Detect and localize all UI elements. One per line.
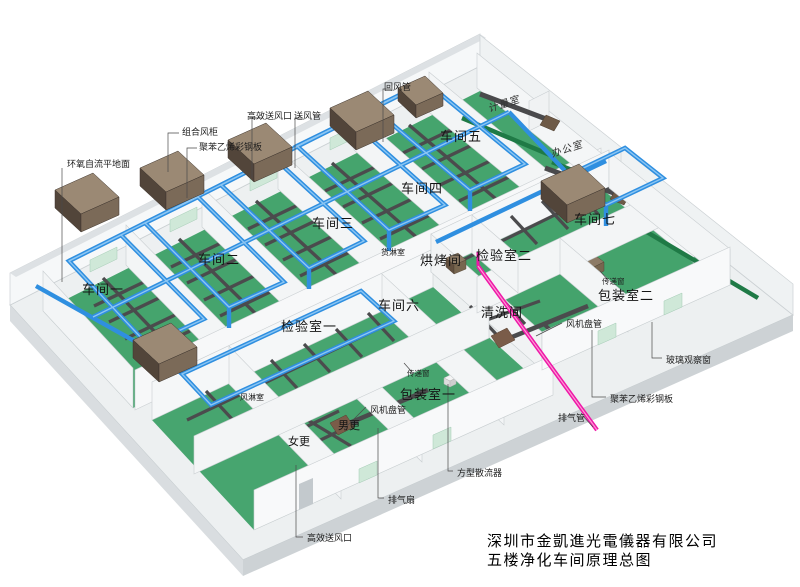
callout-hepa-supply-outlet-bottom: 高效送风口 <box>307 531 352 544</box>
callout-pass-window-right: 传递窗 <box>602 276 625 287</box>
drawing-title: 五楼净化车间原理总图 <box>487 552 718 571</box>
label-workshop-7: 车间七 <box>574 209 616 228</box>
label-packing-room-1: 包装室一 <box>400 384 456 403</box>
callout-fan-coil-right: 风机盘管 <box>566 317 602 330</box>
callout-square-diffuser: 方型散流器 <box>457 466 502 479</box>
title-block: 深圳市金凱進光電儀器有限公司 五楼净化车间原理总图 <box>487 533 718 571</box>
label-baking-room: 烘烤间 <box>420 250 462 269</box>
callout-pass-window-center: 传递窗 <box>407 368 430 379</box>
label-cargo-shower-room: 货淋室 <box>381 247 405 258</box>
label-women-changing: 女更 <box>288 433 310 449</box>
callout-exhaust-pipe: 排气管 <box>558 411 585 424</box>
callout-exhaust-fan: 排气扇 <box>388 493 415 506</box>
label-workshop-6: 车间六 <box>378 295 420 314</box>
label-workshop-4: 车间四 <box>401 178 443 197</box>
label-workshop-2: 车间二 <box>198 249 240 268</box>
diagram-stage: 车间一 车间二 车间三 车间四 车间五 车间六 车间七 检验室一 检验室二 烘烤… <box>0 0 800 587</box>
callout-polystyrene-panel-left: 聚苯乙烯彩钢板 <box>199 140 262 153</box>
label-inspection-room-2: 检验室二 <box>476 245 532 264</box>
label-workshop-5: 车间五 <box>440 126 482 145</box>
label-packing-room-2: 包装室二 <box>598 285 654 304</box>
label-workshop-1: 车间一 <box>82 279 124 298</box>
callout-combined-ahu: 组合风柜 <box>182 125 218 138</box>
callout-glass-observation-window: 玻璃观察窗 <box>666 353 711 366</box>
label-workshop-3: 车间三 <box>312 213 354 232</box>
label-men-changing: 男更 <box>338 417 360 433</box>
callout-return-duct: 回风管 <box>384 80 411 93</box>
callout-hepa-supply-outlet-top: 高效送风口 <box>247 109 292 122</box>
callout-polystyrene-panel-right: 聚苯乙烯彩钢板 <box>610 392 673 405</box>
label-inspection-room-1: 检验室一 <box>281 316 337 335</box>
company-name: 深圳市金凱進光電儀器有限公司 <box>487 533 718 552</box>
label-air-shower-room: 风淋室 <box>240 392 264 403</box>
callout-epoxy-self-leveling-floor: 环氧自流平地面 <box>67 157 130 170</box>
label-cleaning-room: 清洗间 <box>481 302 523 321</box>
callout-supply-duct: 送风管 <box>294 109 321 122</box>
callout-fan-coil-bottom: 风机盘管 <box>370 403 406 416</box>
